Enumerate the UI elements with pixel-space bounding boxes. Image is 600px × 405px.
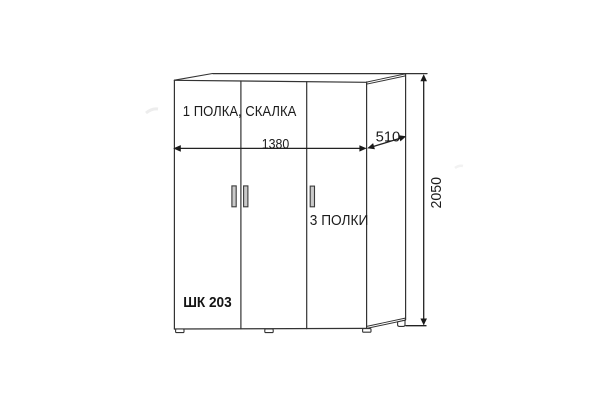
svg-text:510: 510	[376, 129, 401, 145]
svg-text:3 ПОЛКИ: 3 ПОЛКИ	[310, 212, 369, 229]
svg-text:2050: 2050	[428, 177, 445, 209]
svg-text:ШК 203: ШК 203	[183, 294, 232, 311]
svg-text:1380: 1380	[262, 136, 290, 151]
svg-text:1 ПОЛКА, СКАЛКА: 1 ПОЛКА, СКАЛКА	[183, 103, 296, 120]
